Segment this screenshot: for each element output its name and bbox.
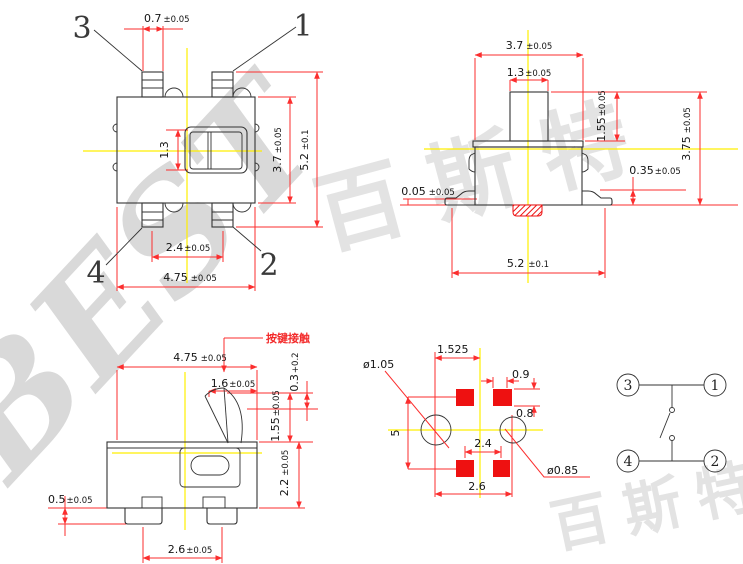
pin-1-label: 1 (293, 9, 312, 44)
pin-2-label: 2 (259, 248, 278, 283)
actuator-fan (205, 388, 242, 443)
plunger-slot (191, 456, 229, 475)
pad-top-left (456, 389, 474, 406)
svg-text:ø1.05: ø1.05 (363, 358, 394, 371)
dim-pin-height: 0.5±0.05 (48, 493, 126, 536)
pad-top-right (493, 389, 512, 406)
body (107, 442, 257, 508)
svg-text:1.6±0.05: 1.6±0.05 (211, 377, 256, 390)
svg-text:2.2±0.05: 2.2±0.05 (278, 450, 291, 497)
pad-bottom-left (456, 460, 474, 477)
sch-pin-1: 1 (711, 378, 720, 394)
watermark-cn: 百斯特 (305, 79, 668, 269)
hole-left-callout: ø1.05 (363, 358, 449, 448)
dim-body-height: 2.2±0.05 (259, 442, 305, 508)
pin-foot-left (125, 508, 162, 524)
svg-text:1.3±0.05: 1.3±0.05 (507, 66, 552, 79)
pin-4-label: 4 (86, 256, 105, 291)
svg-text:1.55±0.05: 1.55±0.05 (269, 390, 282, 442)
sch-pin-2: 2 (711, 454, 720, 470)
contact-annotation-text: 按键接触 (266, 331, 310, 345)
svg-text:1.3: 1.3 (158, 141, 171, 159)
svg-text:4.75±0.05: 4.75±0.05 (173, 351, 227, 364)
dim-row-pitch: 5 (389, 397, 456, 469)
svg-text:1.525: 1.525 (437, 343, 469, 356)
pin-foot-right (207, 508, 237, 524)
pad-bottom-right (493, 460, 510, 477)
svg-text:0.7±0.05: 0.7±0.05 (144, 12, 190, 25)
dim-plunger-width: 1.3±0.05 (507, 66, 552, 91)
pin-3-label: 3 (72, 11, 91, 46)
contact-boss (513, 205, 542, 216)
sch-pin-3: 3 (624, 378, 633, 394)
svg-text:2.6: 2.6 (468, 480, 486, 493)
svg-text:0.9: 0.9 (512, 368, 530, 381)
dim-pad-pitch: 2.4 (465, 437, 501, 458)
hole-right-callout: ø0.85 (505, 429, 590, 477)
dim-offset: 1.525 (435, 343, 480, 358)
dim-pin-pitch: 2.6±0.05 (143, 527, 222, 563)
drawing-canvas: BEST 百斯特 百斯特 0.7±0.05 1.3 3.7±0 (0, 0, 743, 564)
switch-arm (660, 413, 670, 438)
svg-text:2.6±0.05: 2.6±0.05 (168, 543, 213, 556)
contact-bottom (670, 436, 675, 441)
technical-drawing-page: BEST 百斯特 百斯特 0.7±0.05 1.3 3.7±0 (0, 0, 743, 564)
plunger-profile (180, 448, 240, 487)
footprint-view: 1.525 0.9 0.8 5 (363, 343, 590, 498)
svg-text:0.5±0.05: 0.5±0.05 (48, 493, 93, 506)
svg-text:2.4: 2.4 (474, 437, 492, 450)
dim-pad-height: 0.8 (514, 378, 540, 420)
dim-pin-width: 0.7±0.05 (124, 12, 190, 71)
sch-pin-4: 4 (624, 454, 633, 470)
watermark-layer: BEST 百斯特 百斯特 (0, 42, 743, 562)
contact-top (670, 408, 675, 413)
svg-text:5: 5 (389, 430, 402, 437)
svg-text:3.75±0.05: 3.75±0.05 (680, 107, 693, 161)
dim-hole-pitch: 2.6 (435, 480, 512, 494)
svg-text:0.3+0.2: 0.3+0.2 (288, 352, 301, 391)
svg-text:0.8: 0.8 (516, 407, 534, 420)
dim-tip-width: 1.6±0.05 (209, 377, 257, 397)
dim-pad-width: 0.9 (481, 368, 530, 388)
schematic: 3 1 4 2 (617, 374, 726, 472)
dim-tip-height: 1.55±0.05 (259, 390, 313, 442)
svg-text:ø0.85: ø0.85 (547, 464, 578, 477)
svg-text:3.7±0.05: 3.7±0.05 (506, 39, 553, 52)
